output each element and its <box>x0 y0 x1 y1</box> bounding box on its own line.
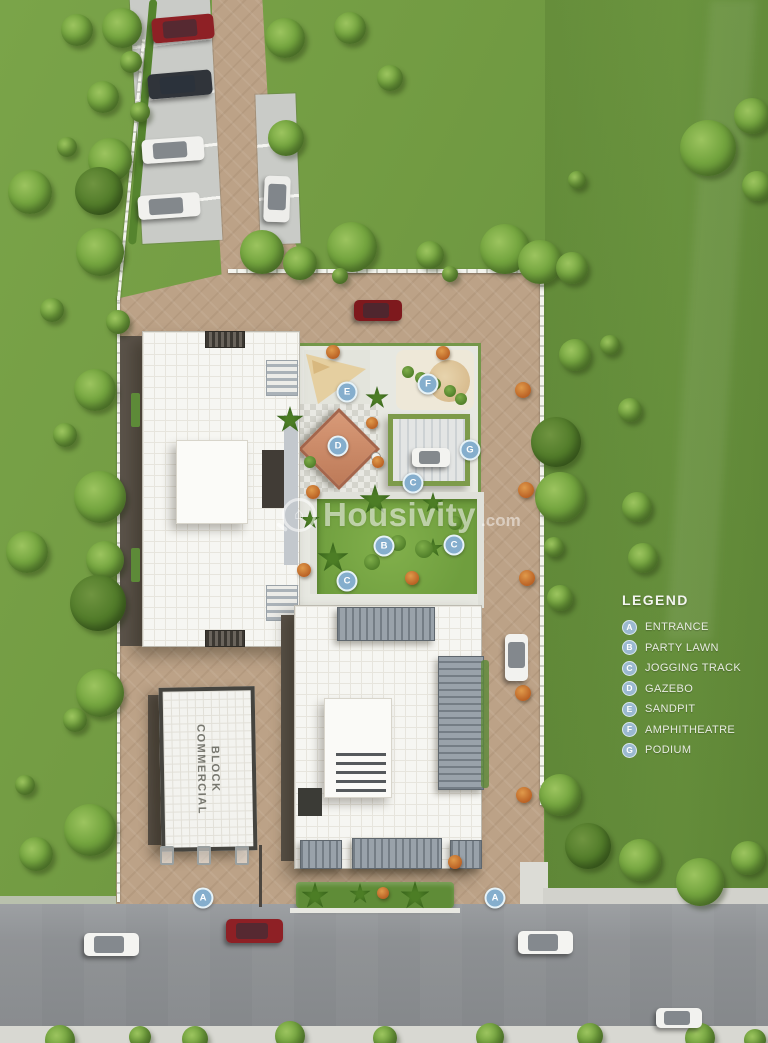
magnifier-house-icon: ⌂ <box>282 498 316 532</box>
curb-left <box>0 896 116 904</box>
roof-vent-grill <box>336 752 386 792</box>
bike-rack <box>235 846 249 865</box>
tree <box>8 170 52 214</box>
legend-badge-b: B <box>622 640 637 655</box>
legend-item-amphitheatre: FAMPHITHEATRE <box>622 720 768 741</box>
entrance-curb <box>290 908 460 913</box>
north-tower-core <box>262 450 284 508</box>
tree <box>63 708 87 732</box>
balcony-rack <box>266 360 298 396</box>
tree <box>6 531 48 573</box>
north-tower-penthouse <box>176 440 248 524</box>
legend-title: LEGEND <box>622 592 768 608</box>
legend-badge-c: C <box>622 661 637 676</box>
roof-vent <box>205 630 245 647</box>
legend-item-gazebo: DGAZEBO <box>622 679 768 700</box>
roof-louver <box>352 838 442 869</box>
tree <box>40 298 64 322</box>
tree <box>480 224 530 274</box>
east-planter-strip <box>481 660 489 788</box>
tree <box>334 12 366 44</box>
legend-badge-d: D <box>622 681 637 696</box>
roof-vent <box>205 331 245 348</box>
tree <box>61 14 93 46</box>
tree <box>53 423 77 447</box>
roof-louver <box>438 656 484 790</box>
legend-items: AENTRANCEBPARTY LAWNCJOGGING TRACKDGAZEB… <box>622 617 768 761</box>
watermark: ⌂ Housivity .com <box>282 496 521 534</box>
tree <box>377 65 403 91</box>
sandpit-area <box>304 350 370 408</box>
legend-label: AMPHITHEATRE <box>645 724 735 736</box>
legend-item-party-lawn: BPARTY LAWN <box>622 638 768 659</box>
gazebo-fountain <box>371 452 381 462</box>
watermark-name: Housivity <box>323 496 476 534</box>
roof-louver <box>450 840 482 869</box>
lamp-post <box>259 845 262 907</box>
boundary-fence-east <box>540 271 544 805</box>
south-tower-facade <box>281 615 295 861</box>
balcony-planter <box>131 548 140 582</box>
legend-label: PODIUM <box>645 744 691 756</box>
balcony-planter <box>131 393 140 427</box>
legend-label: JOGGING TRACK <box>645 662 741 674</box>
legend-badge-f: F <box>622 722 637 737</box>
sidewalk-bottom <box>0 1026 768 1043</box>
podium-parking <box>388 414 470 486</box>
legend-badge-a: A <box>622 620 637 635</box>
roof-equipment <box>298 788 322 816</box>
legend-item-podium: GPODIUM <box>622 740 768 761</box>
amphitheatre-area <box>396 350 474 410</box>
legend-item-jogging-track: CJOGGING TRACK <box>622 658 768 679</box>
tree <box>265 18 305 58</box>
tree <box>15 775 35 795</box>
legend: LEGEND AENTRANCEBPARTY LAWNCJOGGING TRAC… <box>622 592 768 761</box>
roof-louver <box>337 607 435 641</box>
bike-rack <box>160 846 174 865</box>
bike-rack <box>197 846 211 865</box>
legend-item-entrance: AENTRANCE <box>622 617 768 638</box>
legend-label: ENTRANCE <box>645 621 709 633</box>
tree <box>74 369 116 411</box>
watermark-tld: .com <box>481 511 521 531</box>
tree <box>19 837 53 871</box>
boundary-fence-north <box>228 269 543 273</box>
parking-stalls-right <box>255 93 300 244</box>
tree <box>57 137 77 157</box>
tree <box>327 222 377 272</box>
tree <box>64 804 116 856</box>
tree <box>416 241 444 269</box>
tree <box>87 81 119 113</box>
site-plan-canvas: COMMERCIAL BLOCK AABCCCDEFG LEGEND AENTR… <box>0 0 768 1043</box>
tree <box>88 138 132 182</box>
legend-label: PARTY LAWN <box>645 642 719 654</box>
main-road <box>0 904 768 1028</box>
commercial-block-label: COMMERCIAL BLOCK <box>193 699 223 839</box>
commercial-block: COMMERCIAL BLOCK <box>159 686 258 852</box>
legend-label: GAZEBO <box>645 683 693 695</box>
sidewalk-right <box>543 888 768 904</box>
legend-label: SANDPIT <box>645 703 695 715</box>
legend-item-sandpit: ESANDPIT <box>622 699 768 720</box>
legend-badge-e: E <box>622 702 637 717</box>
roof-louver <box>300 840 342 869</box>
north-tower-side-slab <box>284 415 298 565</box>
entrance-hedge <box>296 882 454 908</box>
tree <box>76 228 124 276</box>
tree <box>75 167 123 215</box>
north-tower-facade <box>120 336 144 646</box>
legend-badge-g: G <box>622 743 637 758</box>
